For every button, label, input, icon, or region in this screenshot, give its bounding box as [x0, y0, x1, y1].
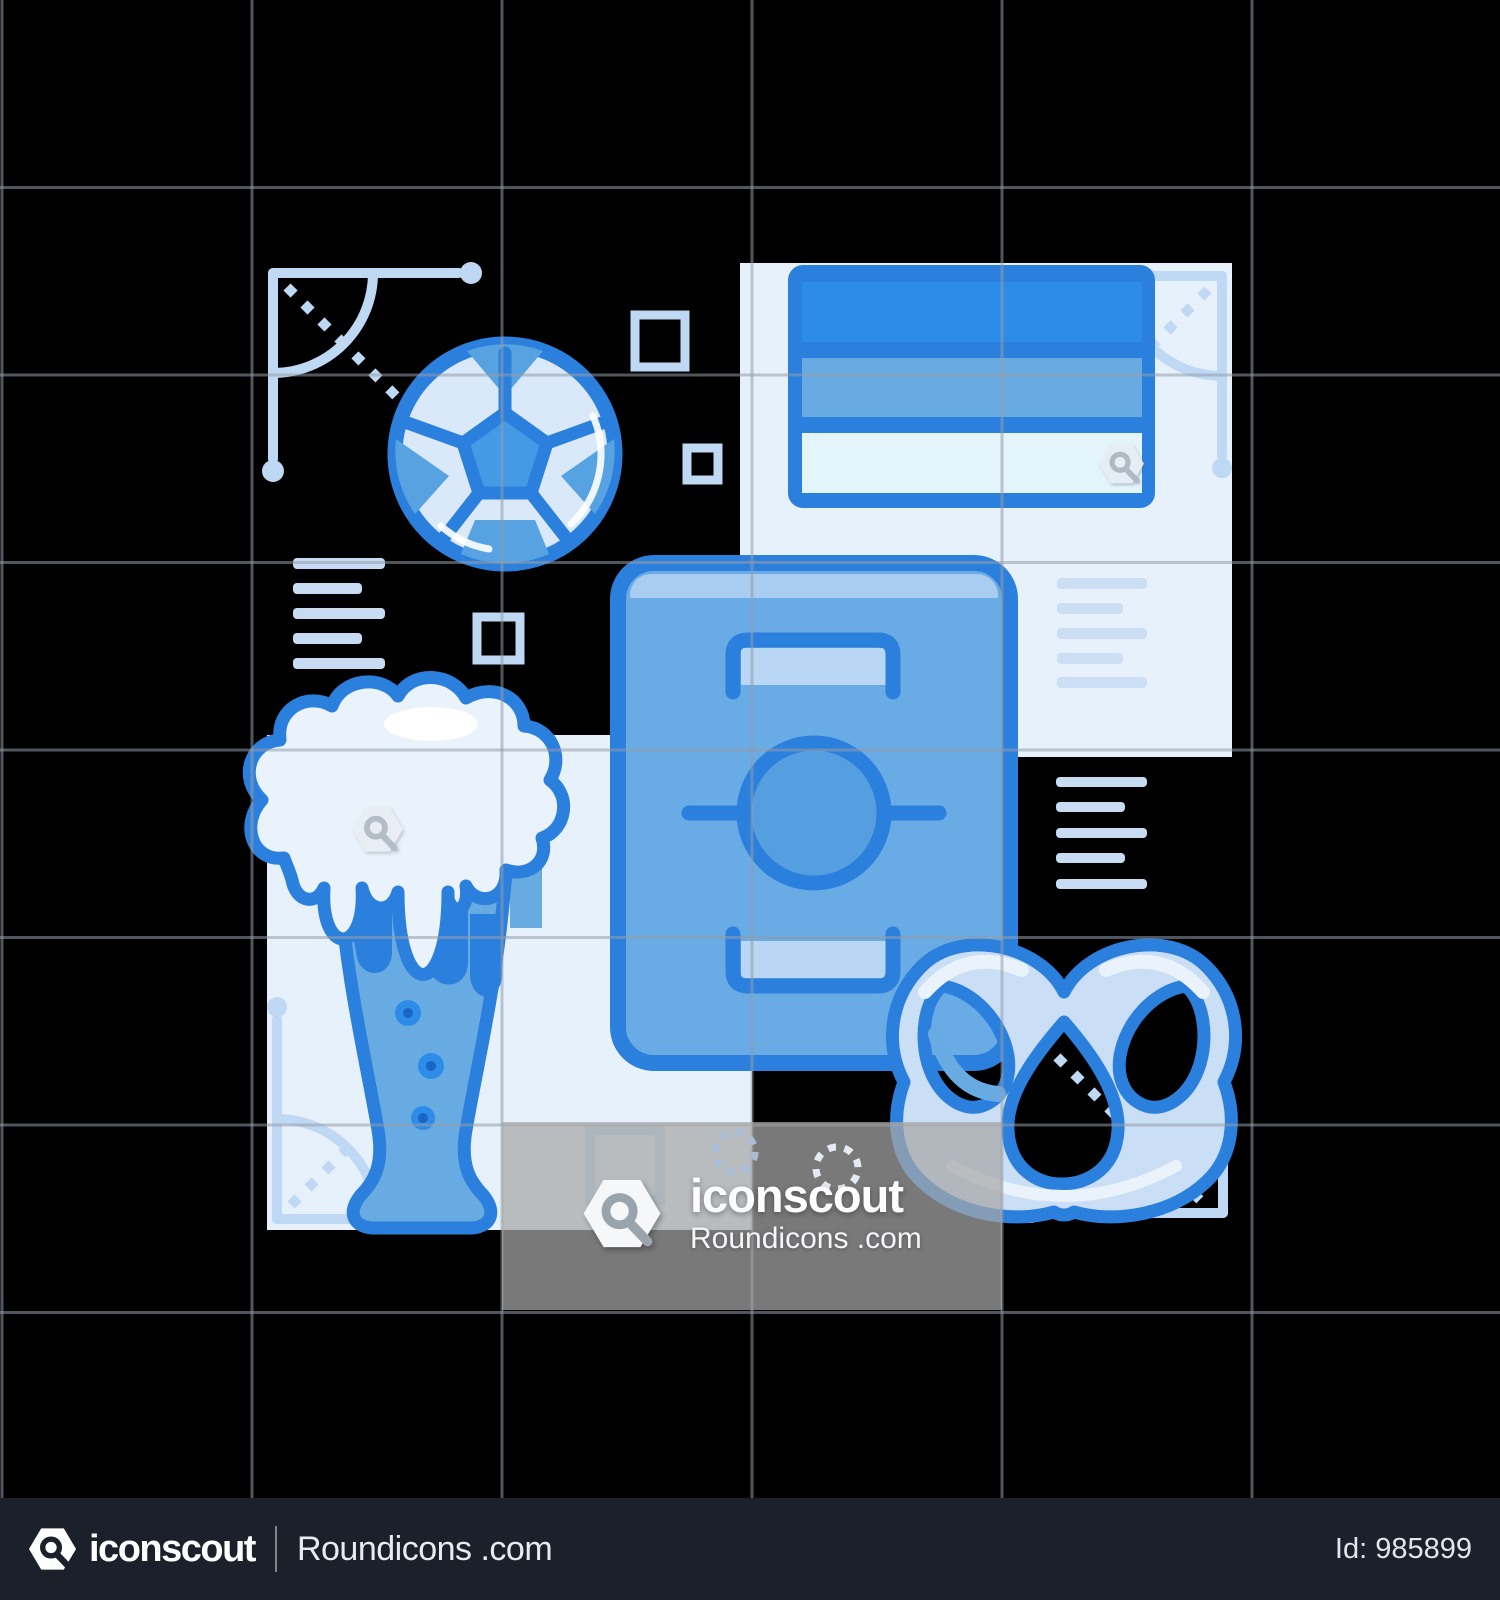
scoreboard-row-3 [802, 433, 1142, 493]
scoreboard-icon [788, 265, 1155, 508]
text-lines-right [1056, 777, 1147, 889]
asset-preview-canvas: iconscout Roundicons .com iconscout Roun… [0, 0, 1500, 1600]
attribution-bar: iconscout Roundicons .com Id: 985899 [0, 1498, 1500, 1600]
asset-id-text: Id: 985899 [1335, 1533, 1472, 1566]
hexagon-magnifier-logo-icon [582, 1178, 662, 1249]
footer-source-text: Roundicons .com [297, 1530, 552, 1569]
footer-divider [275, 1526, 277, 1572]
hollow-square-icon [477, 617, 520, 660]
watermark-overlay: iconscout Roundicons .com [502, 1122, 1002, 1310]
dotted-diagonal-icon [287, 287, 414, 414]
field-center-circle [744, 743, 884, 883]
spinner-circle-icon [715, 1132, 755, 1172]
text-lines-left [293, 558, 385, 669]
foam-highlight [384, 707, 478, 741]
hollow-square-icon [635, 315, 685, 367]
scoreboard-row-2 [802, 358, 1142, 417]
goal-box-top [741, 648, 886, 685]
scoreboard-row-1 [802, 282, 1142, 342]
watermark-brand-text: iconscout [690, 1168, 903, 1223]
goal-box-bottom [741, 941, 886, 978]
iconscout-logo-icon [28, 1527, 77, 1571]
watermark-source-text: Roundicons .com [690, 1222, 922, 1256]
footer-brand-text: iconscout [89, 1528, 255, 1571]
soccer-ball-icon [395, 344, 615, 564]
hollow-square-icon [687, 448, 718, 480]
